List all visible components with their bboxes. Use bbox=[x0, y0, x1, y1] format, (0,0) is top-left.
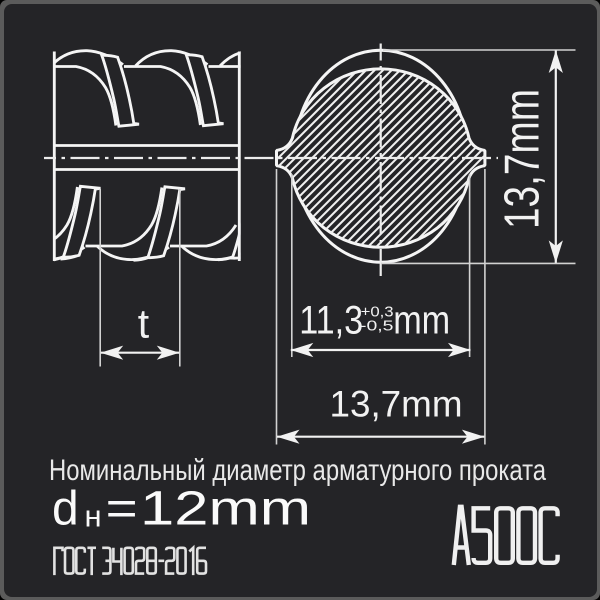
svg-text:12mm: 12mm bbox=[140, 482, 311, 535]
svg-text:н: н bbox=[85, 499, 102, 534]
svg-text:d: d bbox=[52, 482, 79, 535]
svg-text:13,7mm: 13,7mm bbox=[330, 384, 463, 425]
svg-text:13,7mm: 13,7mm bbox=[496, 89, 550, 229]
svg-text:t: t bbox=[138, 301, 150, 347]
svg-text:mm: mm bbox=[393, 299, 450, 343]
svg-text:11,3: 11,3 bbox=[299, 299, 363, 343]
svg-text:-0,5: -0,5 bbox=[360, 319, 394, 335]
svg-text:=: = bbox=[106, 482, 138, 535]
